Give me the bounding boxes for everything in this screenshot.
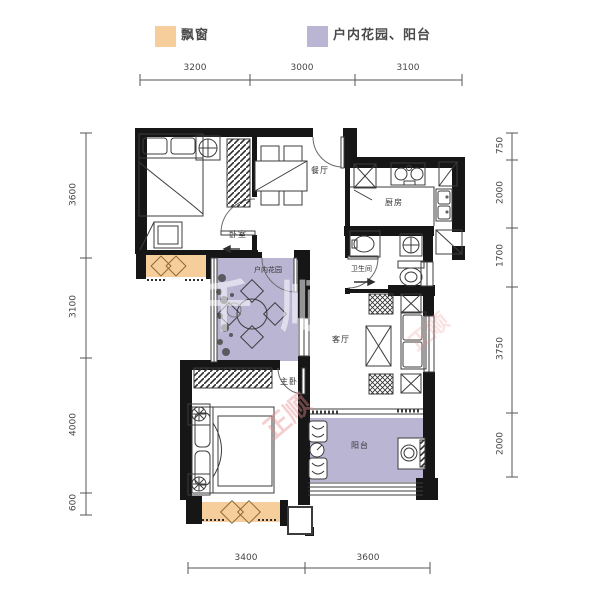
dining-furniture	[255, 146, 307, 205]
legend-label-bay-window: 飘窗	[181, 29, 209, 42]
dim-bottom-2: 3600	[343, 554, 393, 563]
dim-right-4: 3750	[497, 329, 506, 369]
room-label-garden: 户内花园	[254, 267, 282, 274]
master-furniture	[188, 368, 274, 495]
room-label-master: 主卧	[280, 378, 298, 386]
dim-right-1: 750	[497, 126, 506, 166]
dim-left-3: 4000	[70, 405, 79, 445]
room-label-bathroom: 卫生间	[351, 266, 372, 273]
dim-bottom-1: 3400	[221, 554, 271, 563]
floorplan-page: 飘窗 户内花园、阳台 3200 3000 3100 3400 3600 3600…	[0, 0, 600, 607]
kitchen-fixtures	[350, 162, 462, 254]
dim-right-5: 2000	[497, 424, 506, 464]
room-label-dining: 餐厅	[311, 167, 329, 175]
room-label-bedroom: 卧室	[229, 231, 247, 239]
dim-left-4: 600	[70, 483, 79, 523]
room-label-balcony: 阳台	[351, 442, 369, 450]
dim-right-2: 2000	[497, 173, 506, 213]
dim-top-3: 3100	[383, 64, 433, 73]
room-label-kitchen: 厨房	[385, 199, 403, 207]
zone-bay-window-bedroom	[145, 255, 207, 277]
legend-swatch-bay-window	[155, 26, 176, 47]
dim-right-3: 1700	[497, 236, 506, 276]
dim-left-1: 3600	[70, 175, 79, 215]
dim-left-2: 3100	[70, 287, 79, 327]
legend-label-garden-balcony: 户内花园、阳台	[333, 29, 431, 42]
watermark-center: 千顺	[196, 280, 364, 336]
legend-swatch-garden-balcony	[307, 26, 328, 47]
dim-top-2: 3000	[277, 64, 327, 73]
dim-top-1: 3200	[170, 64, 220, 73]
